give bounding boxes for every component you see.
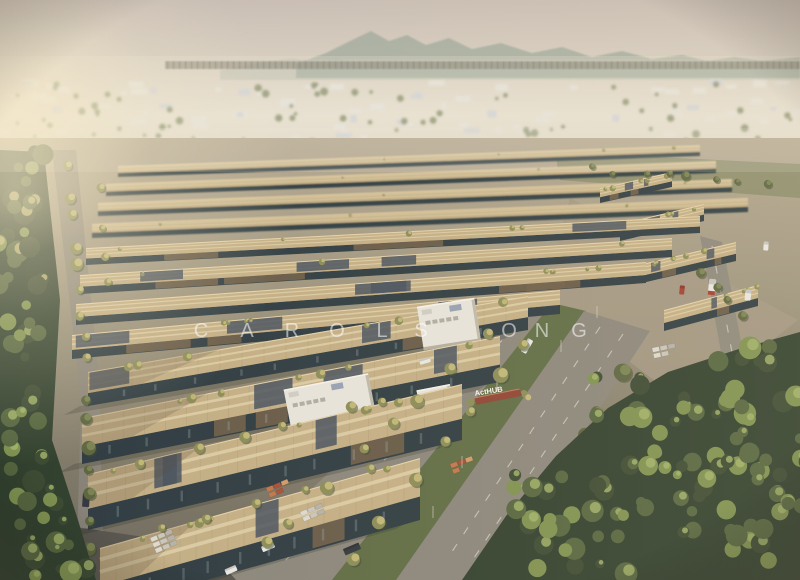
aerial-render-image: ActHUB CAROLSONG bbox=[0, 0, 800, 580]
industrial-park-render: ActHUB CAROLSONG bbox=[0, 0, 800, 580]
vignette bbox=[0, 0, 800, 580]
